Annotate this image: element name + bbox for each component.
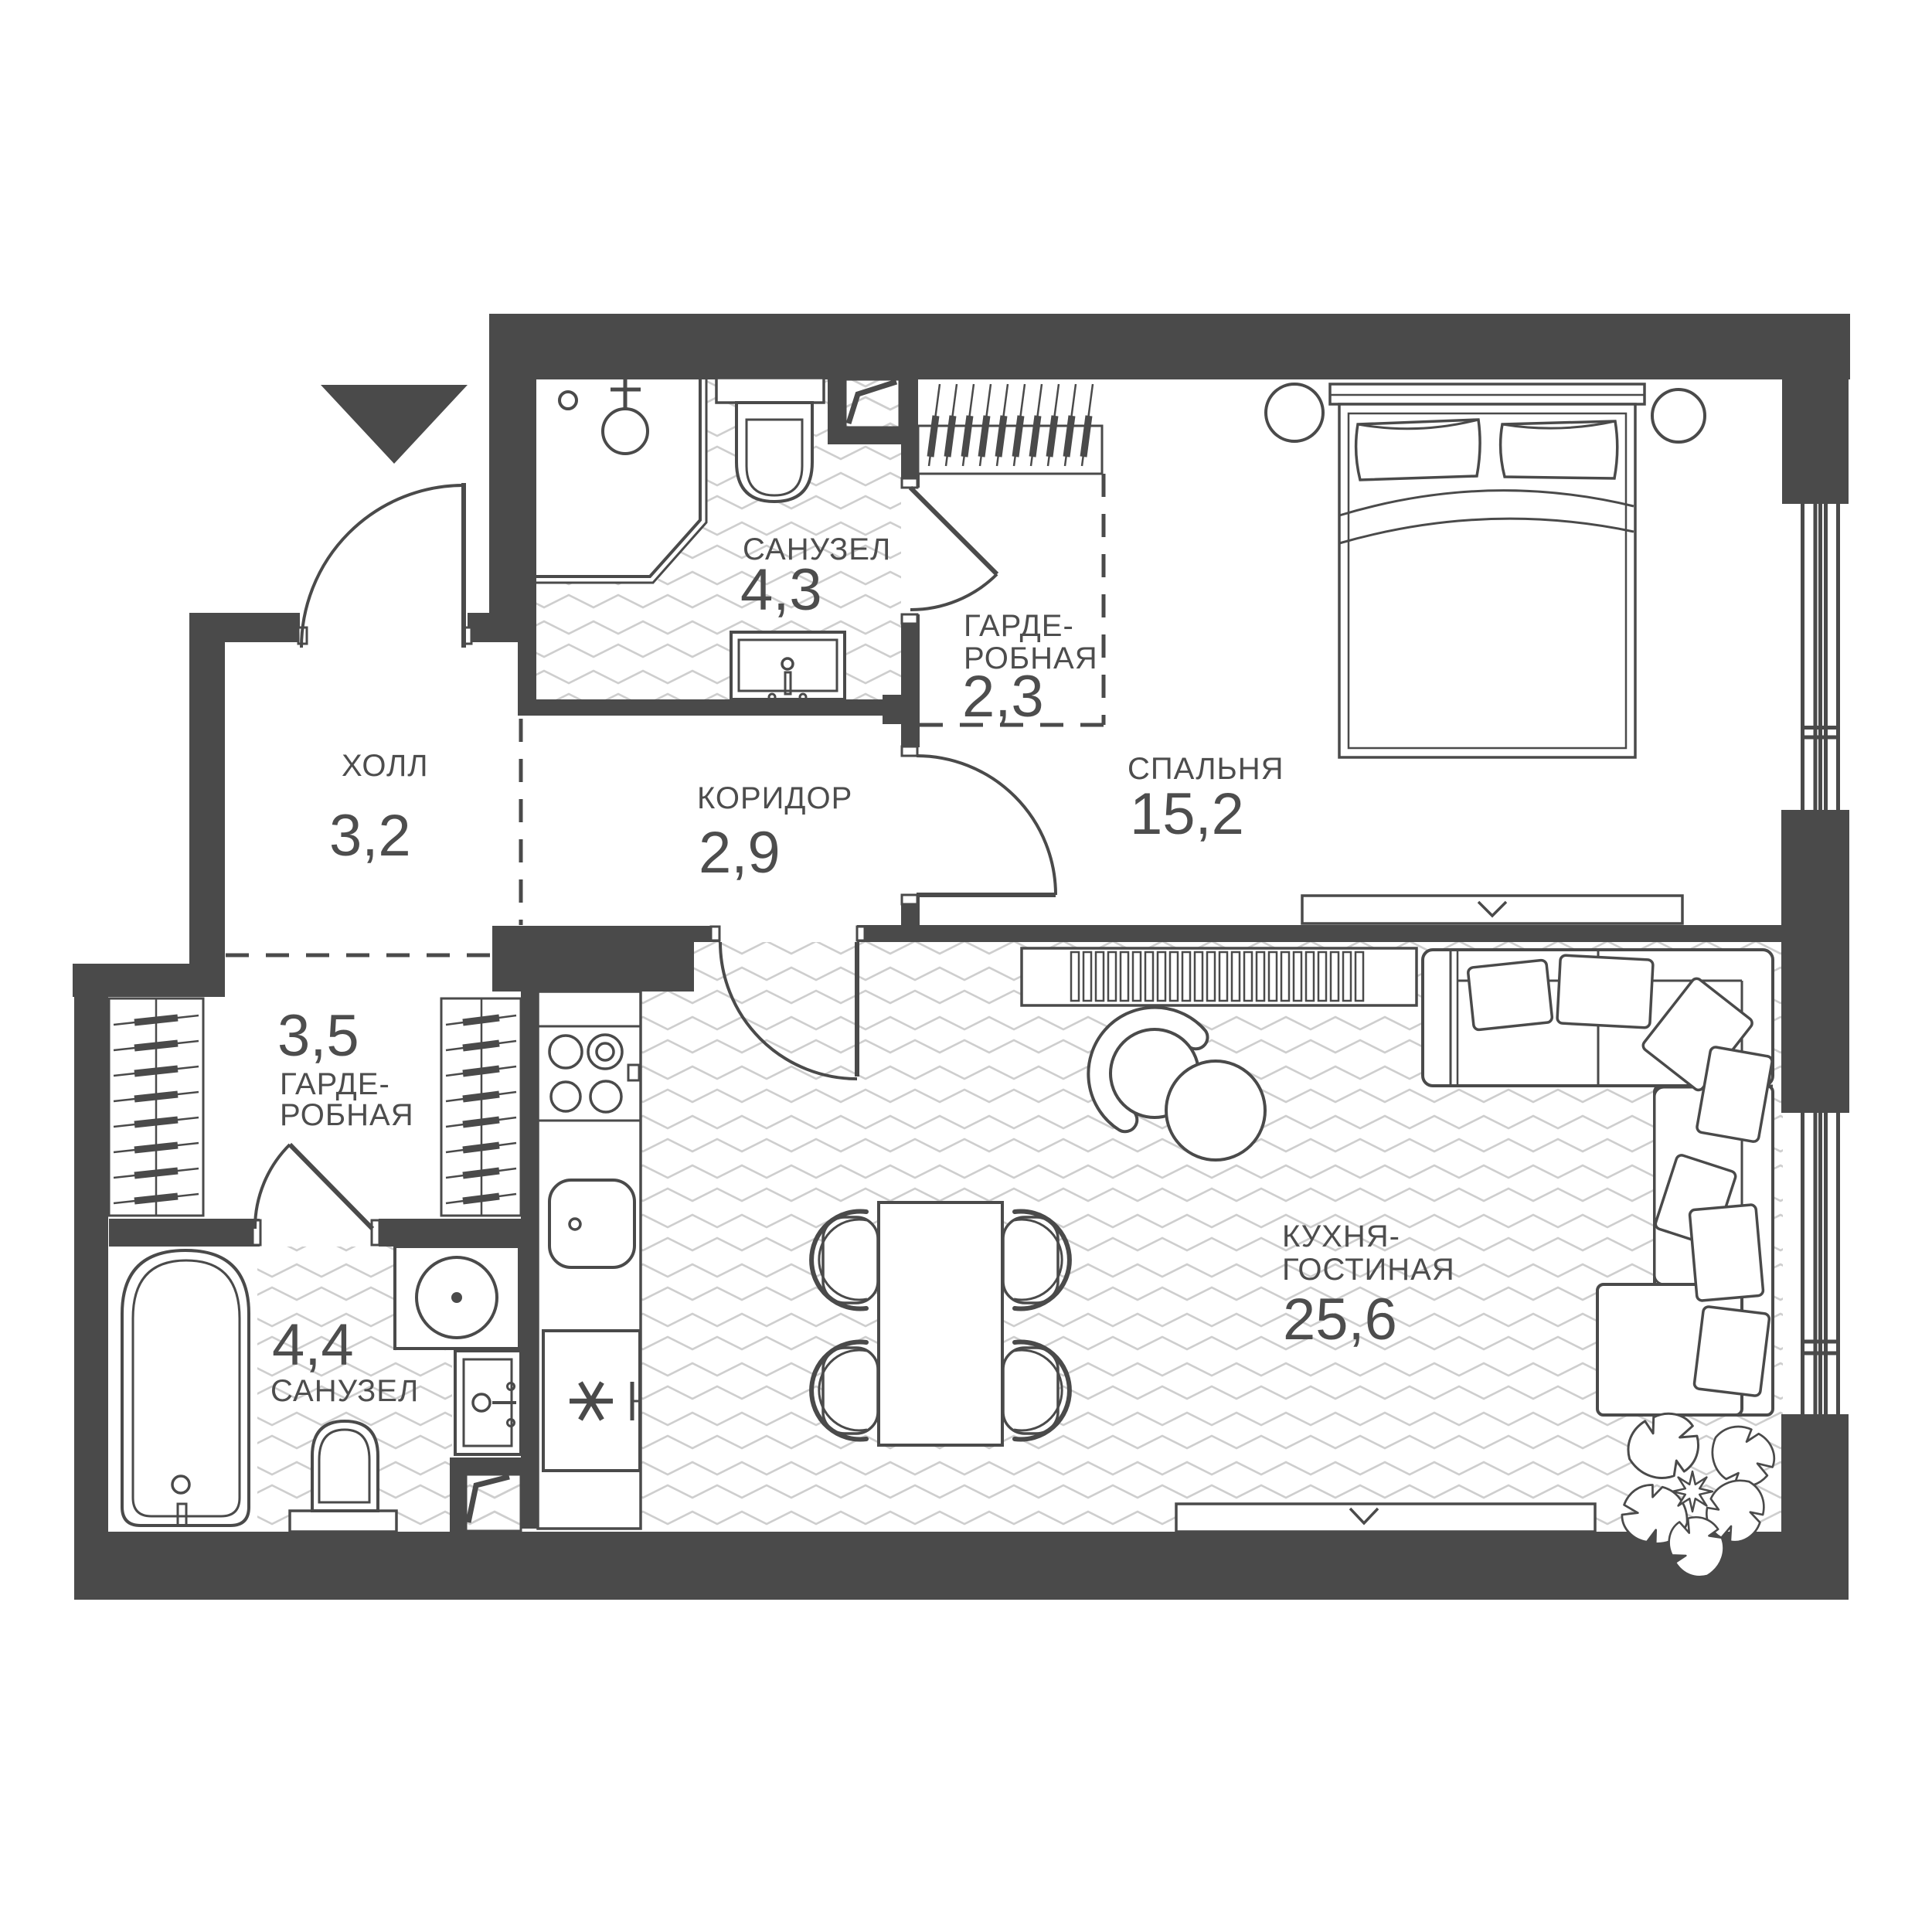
svg-text:2,9: 2,9 — [699, 820, 781, 886]
svg-text:4,3: 4,3 — [740, 557, 822, 623]
svg-text:3,2: 3,2 — [329, 803, 411, 869]
svg-text:КОРИДОР: КОРИДОР — [697, 781, 852, 815]
svg-text:4,4: 4,4 — [272, 1312, 354, 1378]
svg-text:КУХНЯ-: КУХНЯ- — [1282, 1219, 1400, 1253]
svg-text:РОБНАЯ: РОБНАЯ — [280, 1098, 414, 1132]
svg-text:ГАРДЕ-: ГАРДЕ- — [280, 1067, 390, 1101]
svg-text:2,3: 2,3 — [962, 664, 1044, 730]
svg-text:25,6: 25,6 — [1283, 1287, 1397, 1352]
svg-text:ГОСТИНАЯ: ГОСТИНАЯ — [1282, 1253, 1455, 1287]
svg-text:ХОЛЛ: ХОЛЛ — [342, 749, 429, 783]
svg-text:3,5: 3,5 — [277, 1003, 359, 1069]
svg-text:15,2: 15,2 — [1130, 781, 1244, 847]
svg-text:САНУЗЕЛ: САНУЗЕЛ — [270, 1374, 419, 1408]
svg-text:ГАРДЕ-: ГАРДЕ- — [964, 609, 1074, 643]
